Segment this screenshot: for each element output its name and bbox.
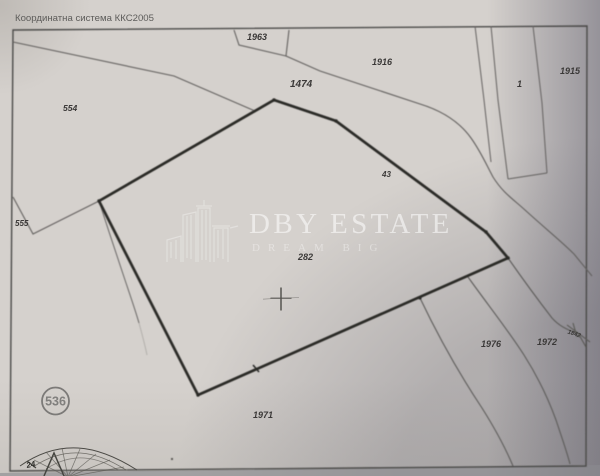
svg-text:1963: 1963 [247, 32, 267, 42]
svg-text:1971: 1971 [253, 410, 273, 420]
svg-text:555: 555 [15, 219, 29, 228]
svg-text:554: 554 [63, 103, 77, 113]
svg-text:1916: 1916 [372, 57, 393, 67]
svg-text:1474: 1474 [290, 79, 313, 90]
svg-text:Координатна система ККС2005: Координатна система ККС2005 [15, 13, 154, 24]
svg-text:282: 282 [297, 252, 313, 262]
svg-text:1976: 1976 [481, 339, 502, 349]
svg-text:536: 536 [45, 395, 66, 409]
svg-text:1972: 1972 [537, 337, 557, 347]
svg-text:43: 43 [381, 170, 391, 179]
svg-text:DREAM BIG: DREAM BIG [252, 242, 385, 254]
svg-text:1915: 1915 [560, 66, 581, 76]
svg-text:DBY ESTATE: DBY ESTATE [249, 208, 453, 240]
svg-text:1: 1 [517, 79, 522, 89]
